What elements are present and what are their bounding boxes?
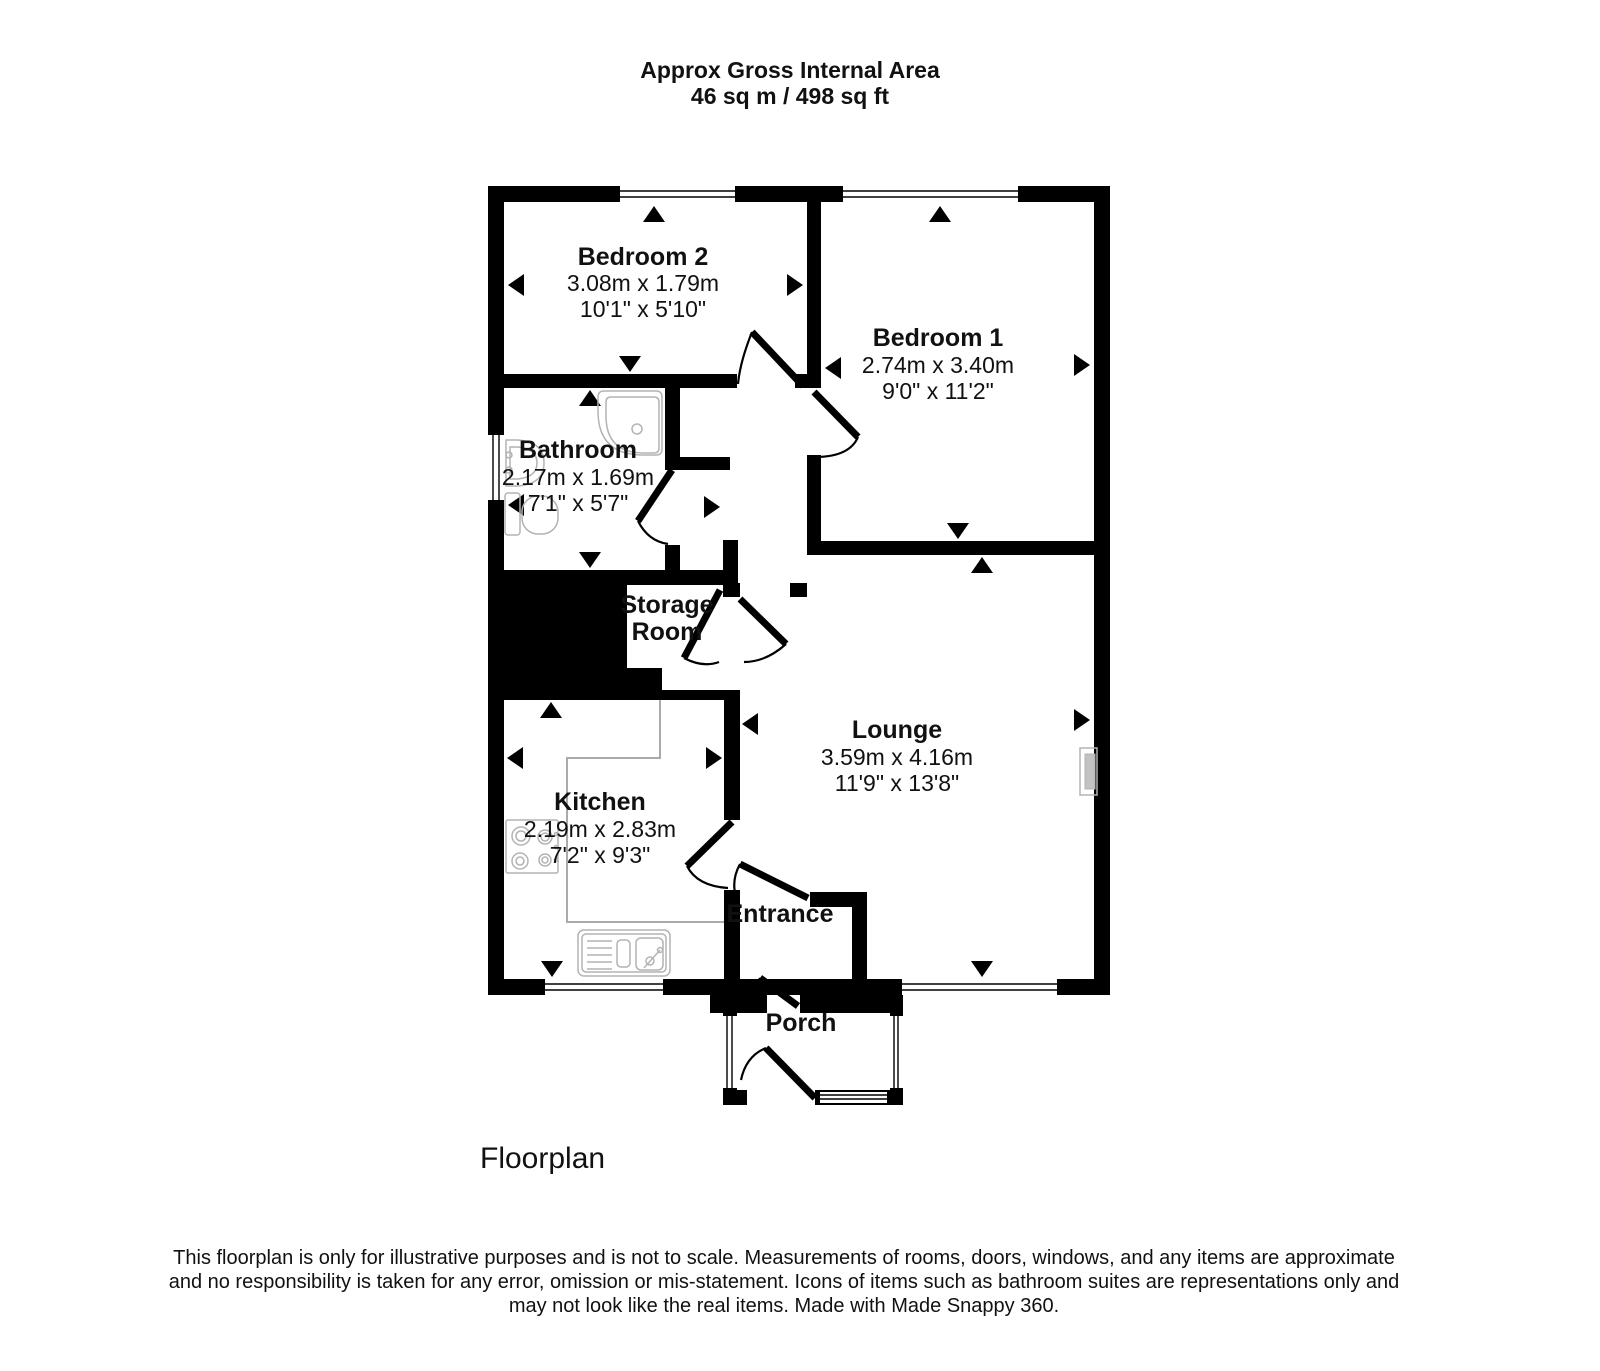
bathroom-metric: 2.17m x 1.69m xyxy=(502,464,654,490)
window-icon xyxy=(902,979,1057,995)
disclaimer-line1: This floorplan is only for illustrative … xyxy=(173,1247,1395,1269)
disclaimer-line2: and no responsibility is taken for any e… xyxy=(169,1271,1400,1293)
floorplan-caption: Floorplan xyxy=(480,1142,605,1175)
window-icon xyxy=(890,1016,903,1088)
kitchen-metric: 2.19m x 2.83m xyxy=(524,816,676,842)
page-background xyxy=(0,0,1600,1371)
window-icon xyxy=(723,1016,737,1088)
window-icon xyxy=(843,186,1018,202)
window-icon xyxy=(620,186,735,202)
window-icon xyxy=(820,1092,887,1103)
bedroom1-name: Bedroom 1 xyxy=(873,324,1004,352)
storage-name-line2: Room xyxy=(632,618,703,646)
bathroom-name: Bathroom xyxy=(519,436,637,464)
window-icon xyxy=(545,979,663,995)
kitchen-name: Kitchen xyxy=(554,788,646,816)
entrance-name: Entrance xyxy=(727,900,834,928)
bedroom2-metric: 3.08m x 1.79m xyxy=(567,270,719,296)
title-line2: 46 sq m / 498 sq ft xyxy=(691,83,889,109)
floorplan-canvas: Approx Gross Internal Area 46 sq m / 498… xyxy=(0,0,1600,1371)
bedroom1-imperial: 9'0" x 11'2" xyxy=(882,378,994,404)
bedroom2-name: Bedroom 2 xyxy=(578,243,709,271)
porch-name: Porch xyxy=(766,1009,837,1037)
kitchen-imperial: 7'2" x 9'3" xyxy=(550,842,651,868)
bedroom2-imperial: 10'1" x 5'10" xyxy=(580,296,706,322)
bathroom-imperial: 7'1" x 5'7" xyxy=(528,490,629,516)
disclaimer-line3: may not look like the real items. Made w… xyxy=(509,1295,1059,1317)
lounge-name: Lounge xyxy=(852,716,942,744)
title-line1: Approx Gross Internal Area xyxy=(640,57,940,83)
lounge-metric: 3.59m x 4.16m xyxy=(821,744,973,770)
bedroom1-metric: 2.74m x 3.40m xyxy=(862,352,1014,378)
lounge-imperial: 11'9" x 13'8" xyxy=(835,770,959,796)
storage-name-line1: Storage xyxy=(620,591,713,619)
